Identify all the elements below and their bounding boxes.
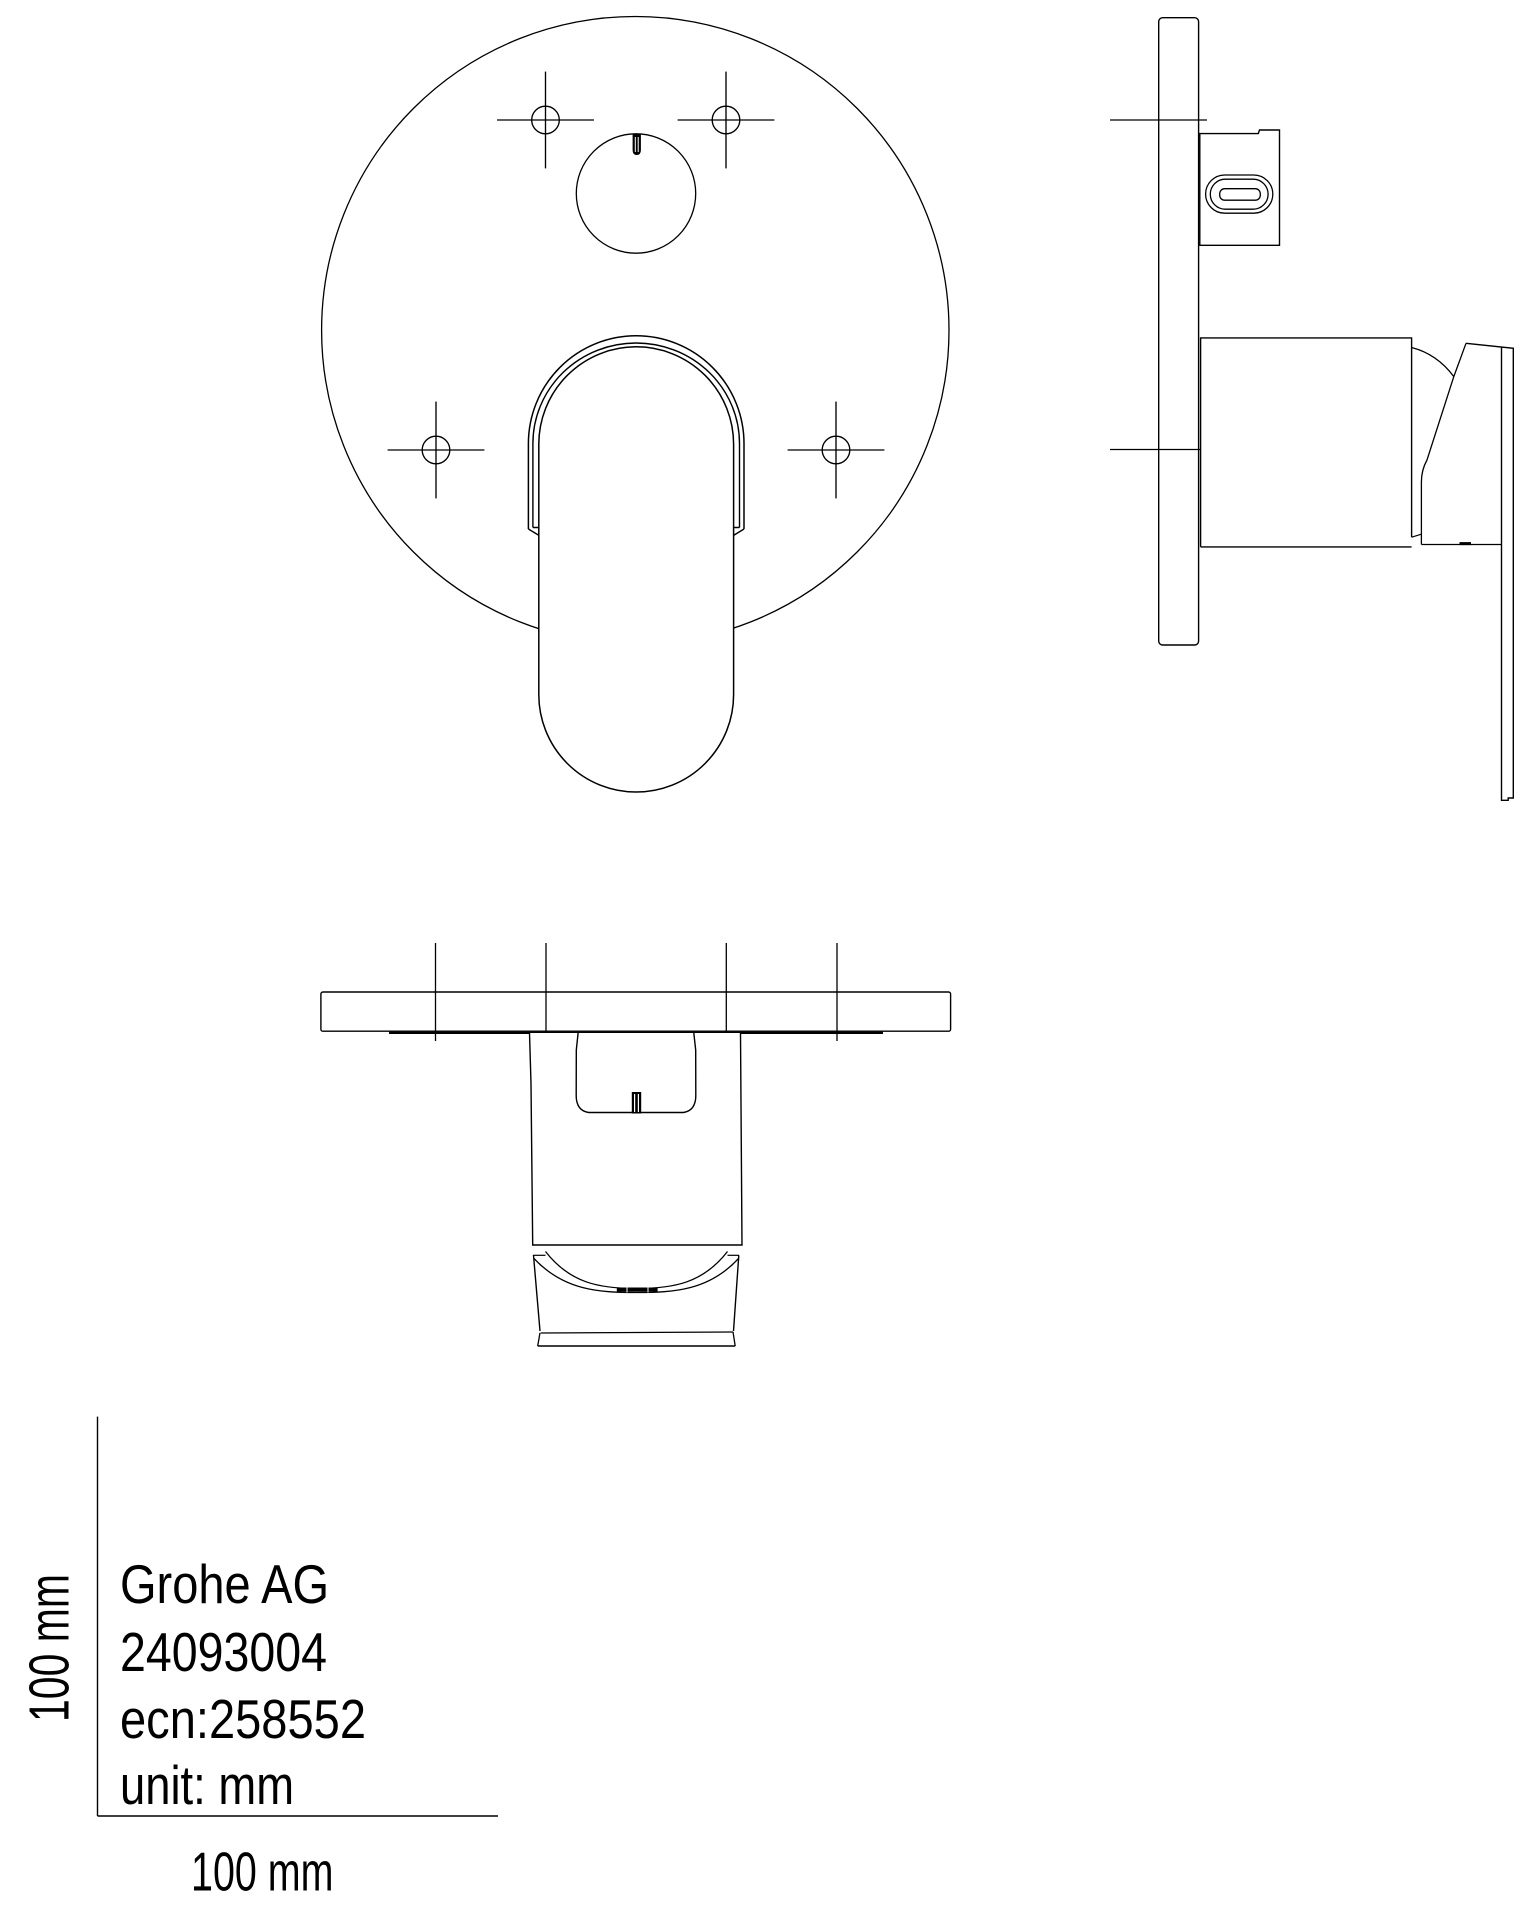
svg-text:Grohe AG: Grohe AG [120, 1553, 329, 1615]
svg-text:unit: mm: unit: mm [120, 1754, 294, 1816]
svg-text:24093004: 24093004 [120, 1621, 327, 1683]
svg-text:100 mm: 100 mm [18, 1574, 82, 1722]
svg-text:100 mm: 100 mm [191, 1841, 334, 1903]
svg-text:ecn:258552: ecn:258552 [120, 1688, 366, 1750]
